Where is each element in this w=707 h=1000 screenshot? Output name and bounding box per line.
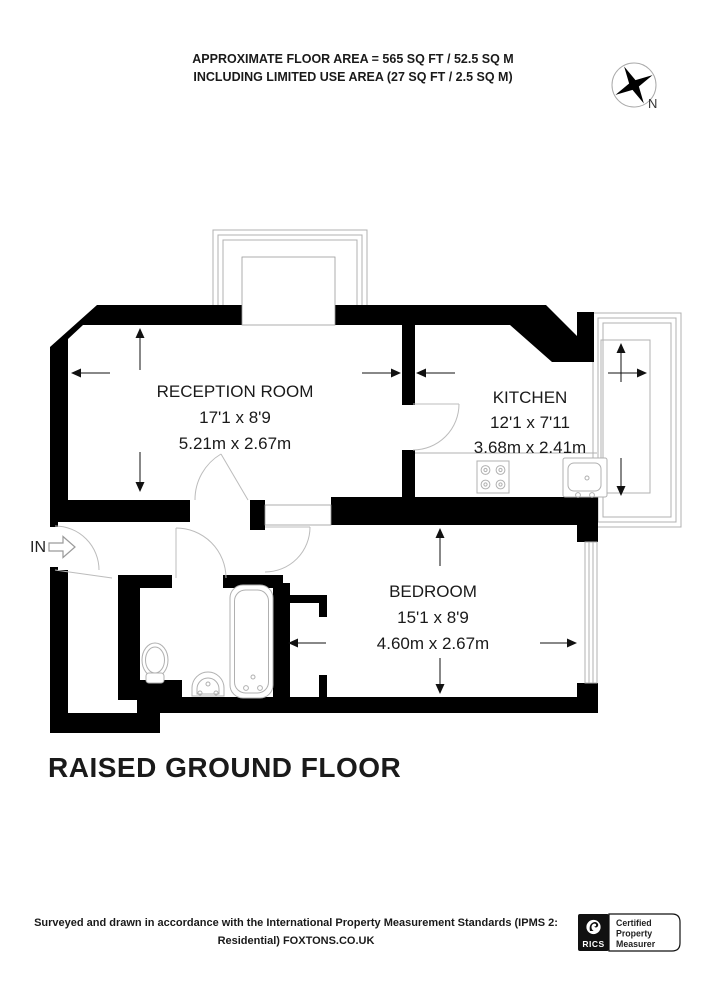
reception-imperial: 17'1 x 8'9	[199, 408, 271, 427]
kitchen-imperial: 12'1 x 7'11	[490, 413, 570, 432]
bedroom-metric: 4.60m x 2.67m	[377, 634, 489, 653]
footer-line1: Surveyed and drawn in accordance with th…	[34, 917, 558, 929]
compass-north-label: N	[648, 96, 657, 111]
approx-area-line1: APPROXIMATE FLOOR AREA = 565 SQ FT / 52.…	[192, 52, 513, 66]
floor-title: RAISED GROUND FLOOR	[48, 752, 401, 783]
reception-name: RECEPTION ROOM	[157, 382, 314, 401]
bathroom-door	[176, 528, 226, 578]
kitchen-metric: 3.68m x 2.41m	[474, 438, 586, 457]
entrance-label: IN	[30, 539, 46, 556]
cert-line-3: Measurer	[616, 939, 656, 949]
entrance-arrow-icon	[49, 537, 75, 558]
bedroom-imperial: 15'1 x 8'9	[397, 608, 469, 627]
bedroom-window	[585, 542, 597, 683]
entrance-marker: IN	[30, 537, 75, 558]
rics-badge: RICS Certified Property Measurer	[578, 914, 680, 951]
cert-line-1: Certified	[616, 918, 652, 928]
room-label-bedroom: BEDROOM 15'1 x 8'9 4.60m x 2.67m	[377, 582, 489, 653]
kitchen-door	[413, 404, 459, 450]
bedroom-name: BEDROOM	[389, 582, 477, 601]
bay-opening	[242, 257, 335, 325]
cert-line-2: Property	[616, 929, 652, 939]
room-label-kitchen: KITCHEN 12'1 x 7'11 3.68m x 2.41m	[474, 388, 586, 457]
bathtub-icon	[230, 585, 273, 698]
floorplan-page: APPROXIMATE FLOOR AREA = 565 SQ FT / 52.…	[0, 0, 707, 1000]
reception-door	[195, 454, 248, 500]
floorplan-drawing: APPROXIMATE FLOOR AREA = 565 SQ FT / 52.…	[0, 0, 707, 1000]
compass-icon: N	[606, 57, 663, 114]
reception-metric: 5.21m x 2.67m	[179, 434, 291, 453]
wash-basin-icon	[192, 672, 224, 696]
footer-line2: Residential) FOXTONS.CO.UK	[218, 935, 375, 947]
approx-area-line2: INCLUDING LIMITED USE AREA (27 SQ FT / 2…	[193, 70, 512, 84]
toilet-icon	[142, 643, 168, 683]
room-label-reception: RECEPTION ROOM 17'1 x 8'9 5.21m x 2.67m	[157, 382, 314, 453]
hob-icon	[477, 461, 509, 493]
bedroom-door	[265, 527, 310, 572]
rics-org-label: RICS	[582, 939, 604, 949]
kitchen-sink-icon	[563, 458, 607, 497]
kitchen-name: KITCHEN	[493, 388, 568, 407]
hall-opening	[265, 505, 331, 525]
